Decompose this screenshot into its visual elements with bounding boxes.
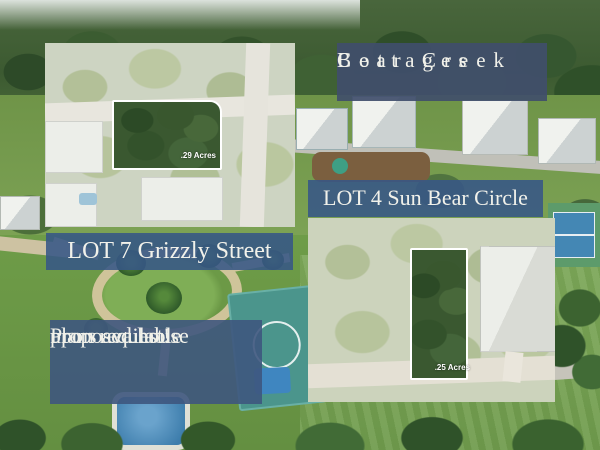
cottage-house (296, 108, 348, 150)
lot4-acreage-label: .25 Acres (435, 363, 470, 372)
palm-tree (146, 282, 182, 314)
inset-lot7-photo: .29 Acres (45, 43, 295, 227)
faded-driveway (502, 351, 523, 383)
faded-house (480, 246, 555, 352)
cottage-house (462, 100, 528, 155)
cottage-house (538, 118, 596, 164)
faded-house (45, 121, 103, 173)
lot4-boundary: .25 Acres (410, 248, 468, 380)
playground-equipment (332, 158, 348, 174)
note-banner: Proposed house plans available upon requ… (50, 320, 262, 404)
cottage-house (0, 196, 40, 230)
house-roof (297, 109, 347, 149)
tennis-court (548, 203, 600, 267)
faded-house (141, 177, 223, 221)
house-roof (1, 197, 39, 229)
faded-house (45, 183, 97, 227)
house-roof (353, 97, 415, 147)
house-roof (539, 119, 595, 163)
aerial-photo-collage: .29 Acres .25 Acres Bear Creek Cottages … (0, 0, 600, 450)
note-line-3: upon request! (50, 323, 170, 349)
lot7-boundary: .29 Acres (112, 100, 222, 170)
tennis-court-line (553, 234, 595, 236)
lot4-street-label: LOT 4 Sun Bear Circle (308, 180, 543, 217)
tree-line-bottom (0, 398, 600, 450)
title-banner: Bear Creek Cottages (337, 43, 547, 101)
inset-lot4-photo: .25 Acres (308, 218, 555, 402)
sky-haze (0, 0, 360, 30)
title-line-2: Cottages (337, 48, 475, 73)
lot7-street-label: LOT 7 Grizzly Street (46, 233, 293, 270)
faded-pool (79, 193, 97, 205)
house-roof (463, 101, 527, 154)
cottage-house (352, 96, 416, 148)
playground (312, 152, 430, 182)
lot7-acreage-label: .29 Acres (181, 151, 216, 160)
